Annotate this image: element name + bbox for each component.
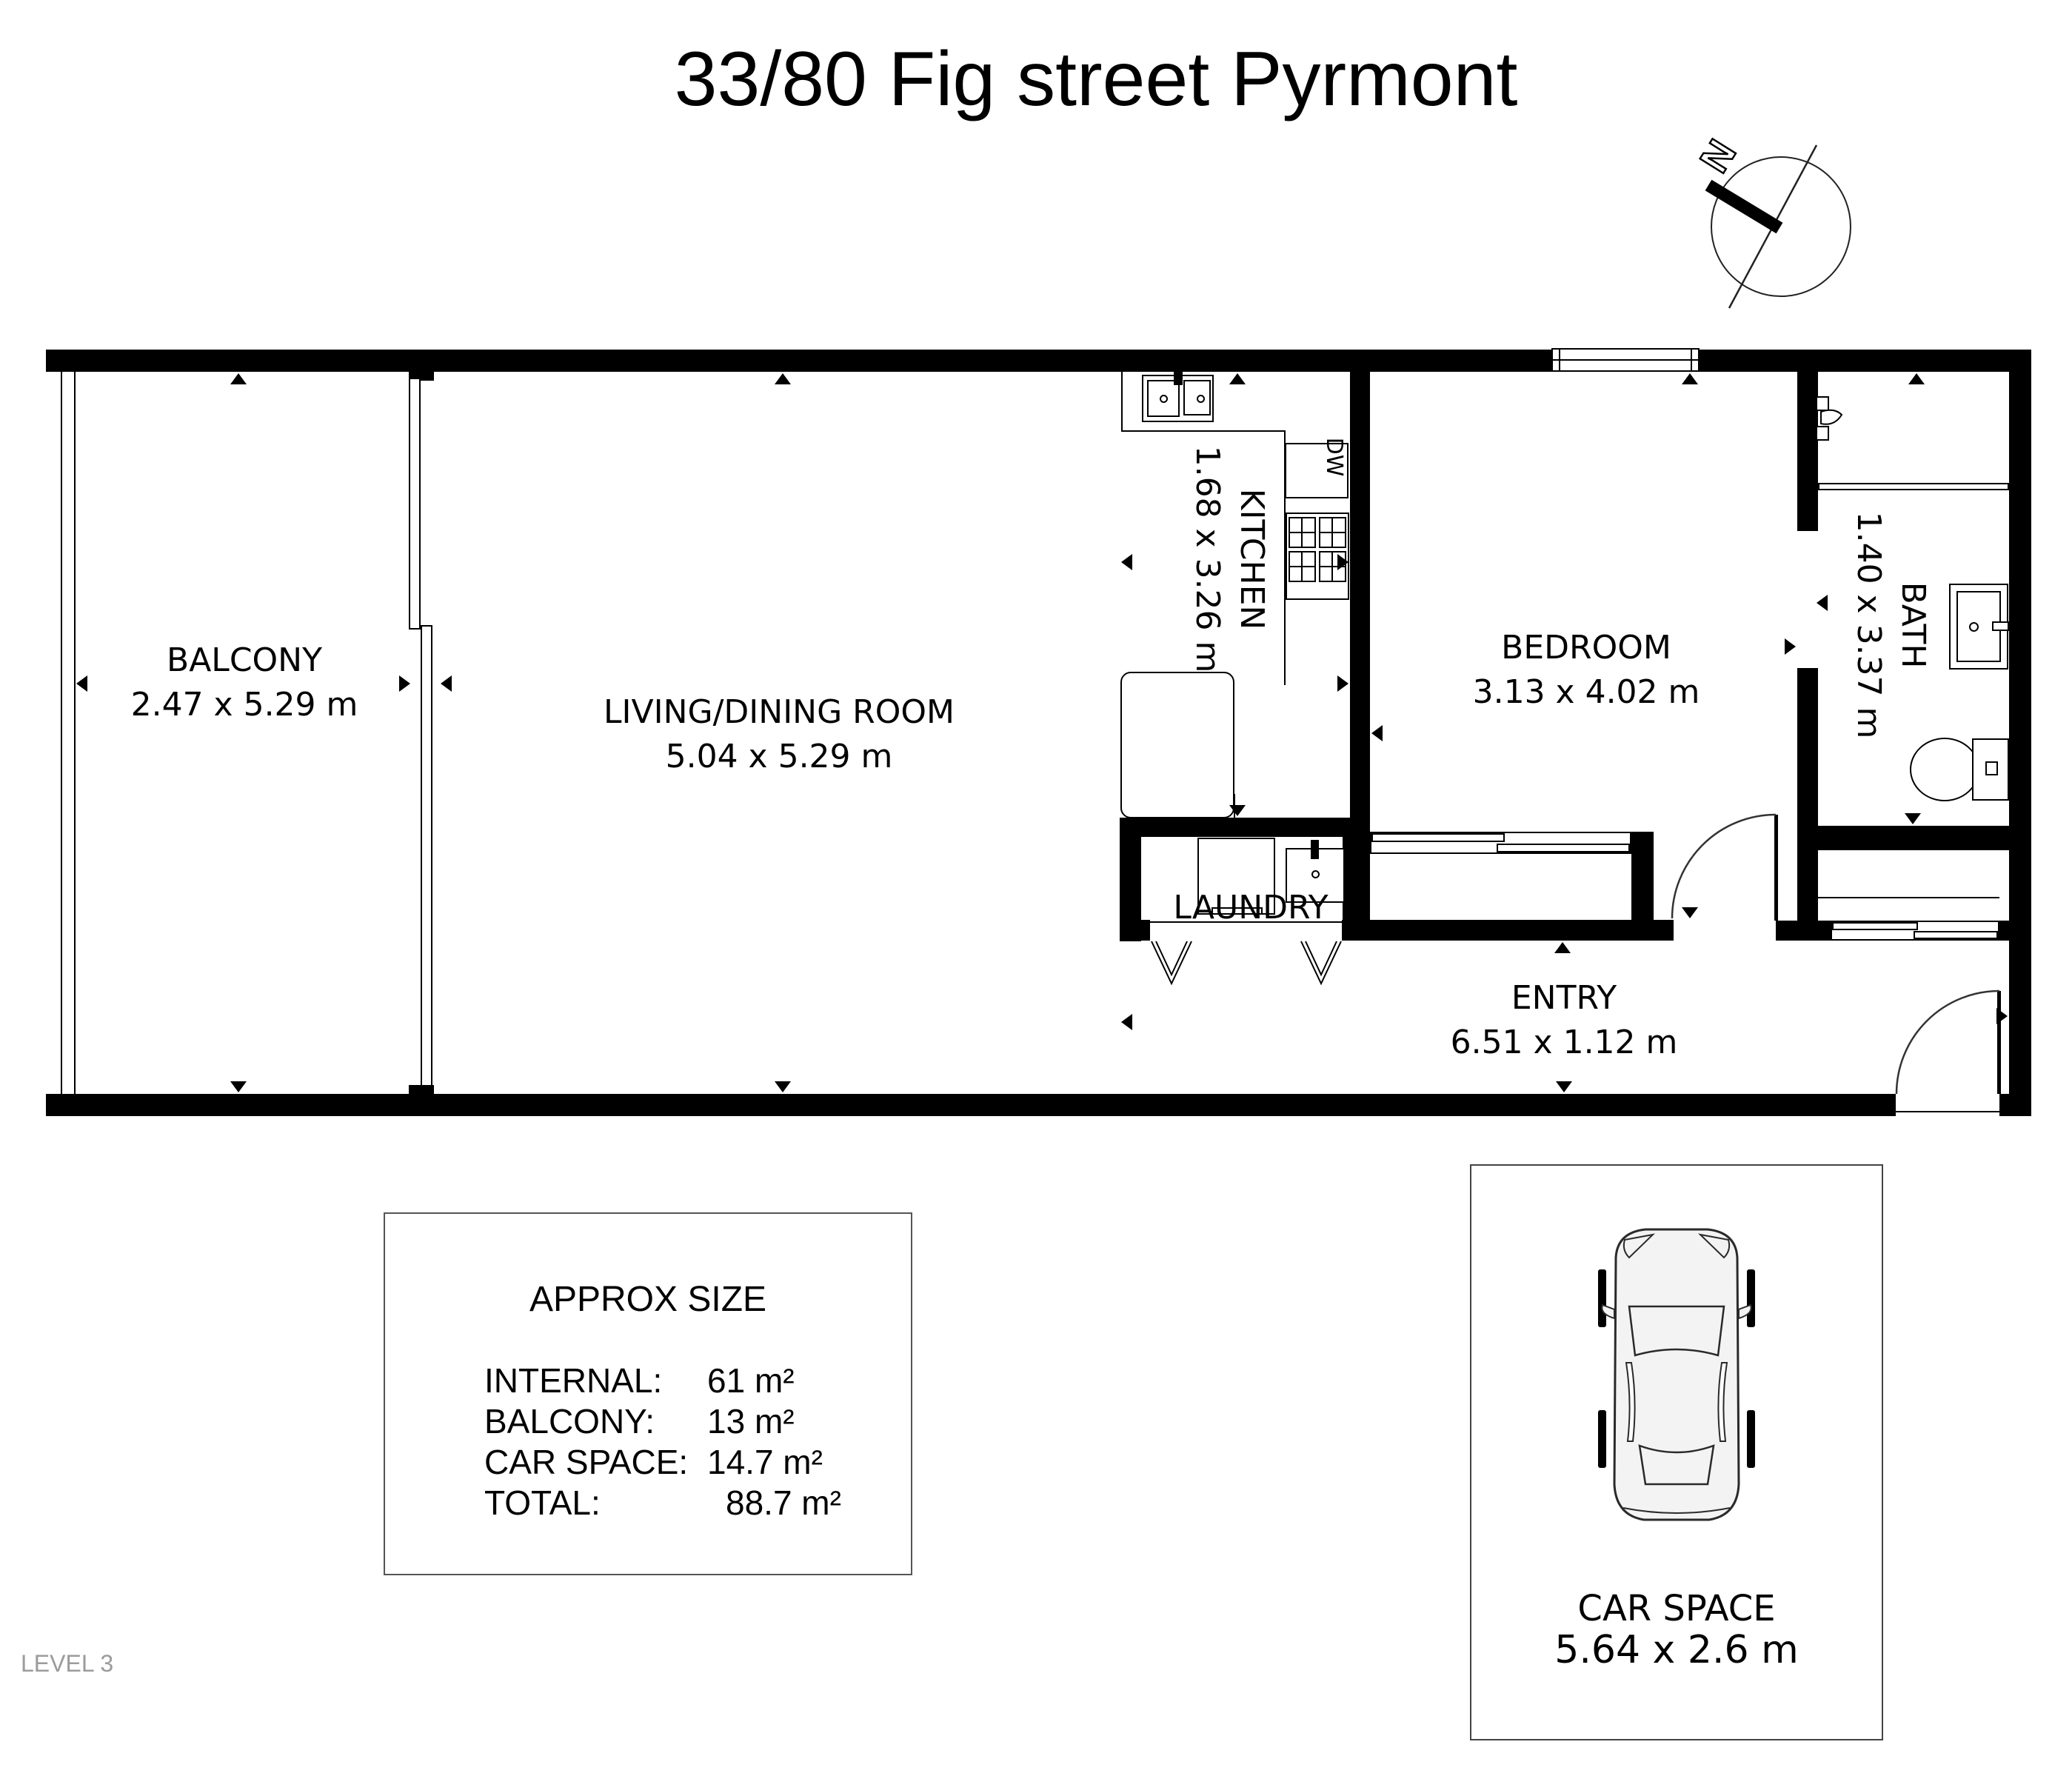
living-name: LIVING/DINING ROOM [557,690,1001,735]
balcony-label: BALCONY 2.47 x 5.29 m [96,638,392,727]
wall-entry-top-mid [1342,920,1674,941]
bedroom-window [1551,348,1700,372]
approx-row-label: CAR SPACE: [484,1442,688,1483]
laundry-tub-drain [1311,870,1320,878]
dim-arrow [1682,373,1698,384]
dim-arrow [76,675,87,692]
bedroom-dims: 3.13 x 4.02 m [1438,670,1734,715]
cupboard-shelf-line [1818,897,1999,898]
window-mullion [1553,359,1698,361]
approx-row-label: TOTAL: [484,1483,601,1523]
dim-arrow [441,675,452,692]
dim-arrow [1337,554,1349,570]
laundry-bifold-doors [1146,941,1348,987]
floor-plan-page: 33/80 Fig street Pyrmont N DW [0,0,2072,1776]
balcony-rail-inner [74,372,76,1094]
car-icon [1598,1223,1755,1527]
entry-name: ENTRY [1416,976,1712,1021]
shower-screen [1818,483,2009,490]
approx-size-title: APPROX SIZE [385,1279,911,1320]
bedroom-name: BEDROOM [1438,626,1734,670]
dim-arrow [1121,554,1132,570]
cupboard-slider-panel-2 [1914,931,1998,939]
approx-size-box: APPROX SIZE INTERNAL: 61 m² BALCONY: 13 … [384,1212,912,1575]
approx-row-value: 13 m² [707,1401,795,1442]
approx-row-label: BALCONY: [484,1401,655,1442]
dim-arrow [1817,595,1828,611]
bedroom-door-arc [1671,813,1778,921]
dim-arrow [1908,373,1925,384]
wall-door-hinge-chunk [1776,921,1831,941]
level-label: LEVEL 3 [21,1650,113,1677]
kitchen-name: KITCHEN [1229,433,1274,685]
entry-label: ENTRY 6.51 x 1.12 m [1416,976,1712,1065]
window-frame-left [1559,350,1560,370]
bedroom-label: BEDROOM 3.13 x 4.02 m [1438,626,1734,715]
wall-laundry-top [1120,818,1343,837]
bath-name: BATH [1891,499,1935,751]
balcony-name: BALCONY [96,638,392,683]
bath-dims: 1.40 x 3.37 m [1846,499,1891,751]
kitchen-counter-bottom-line [1121,430,1286,432]
dim-arrow [1121,1014,1132,1030]
dim-arrow [1229,805,1246,816]
kitchen-tap-icon [1174,367,1183,385]
page-title: 33/80 Fig street Pyrmont [648,36,1544,124]
kitchen-counter-left-line [1121,370,1123,432]
dim-arrow [1337,675,1349,692]
kitchen-dims: 1.68 x 3.26 m [1185,433,1229,685]
car-space-name: CAR SPACE [1528,1586,1825,1631]
window-frame-right [1691,350,1692,370]
balcony-rail-outer [61,372,62,1094]
dim-arrow [1371,725,1383,741]
vanity-drain [1969,622,1979,632]
closet-slider-panel-2 [1497,844,1630,852]
dim-arrow [1554,942,1571,953]
living-label: LIVING/DINING ROOM 5.04 x 5.29 m [557,690,1001,779]
wall-top [46,350,2031,372]
laundry-tap-icon [1311,840,1319,859]
dim-arrow [230,1081,247,1092]
dim-arrow [1229,373,1246,384]
dim-arrow [1682,907,1698,918]
kitchen-drain-left [1160,395,1168,403]
kitchen-label: KITCHEN 1.68 x 3.26 m [1185,433,1274,685]
approx-row-value: 88.7 m² [726,1483,841,1523]
dim-arrow [1556,1081,1572,1092]
approx-row-value: 14.7 m² [707,1442,823,1483]
dim-arrow [1996,1008,2008,1024]
approx-row-label: INTERNAL: [484,1361,662,1401]
front-door-threshold [1896,1111,1999,1112]
front-door-arc [1895,989,2001,1095]
balcony-sliding-panel-2 [421,625,432,1086]
closet-slider-panel-1 [1371,833,1505,842]
dim-arrow [1905,813,1921,824]
wall-bath-bottom [1816,826,2031,850]
kitchen-drain-right [1197,395,1205,403]
car-space-dims: 5.64 x 2.6 m [1528,1628,1825,1672]
wall-bath-left-lower [1797,668,1818,921]
dim-arrow [1785,638,1796,655]
dim-arrow [775,373,791,384]
balcony-sliding-panel-1 [409,378,421,630]
dim-arrow [230,373,247,384]
north-compass-icon: N [1692,132,1870,317]
wall-right [2009,350,2031,1116]
living-dims: 5.04 x 5.29 m [557,735,1001,779]
kitchen-bench [1120,672,1234,818]
dishwasher-label: DW [1320,427,1347,487]
cupboard-slider-panel-1 [1832,922,1918,930]
dim-arrow [399,675,410,692]
wall-bottom-left [46,1094,1896,1116]
laundry-label: LAUNDRY [1140,886,1362,930]
shower-tap-icon [1817,394,1846,444]
wall-bath-left-upper [1797,350,1818,531]
wall-bedroom-left [1350,350,1370,832]
vanity-tap-icon [1992,621,2009,631]
wall-closet-right [1631,832,1654,941]
balcony-dims: 2.47 x 5.29 m [96,683,392,727]
approx-row-value: 61 m² [707,1361,795,1401]
bath-label: BATH 1.40 x 3.37 m [1846,499,1935,751]
dim-arrow [775,1081,791,1092]
wall-cupboard-stub-right [1999,921,2009,941]
entry-dims: 6.51 x 1.12 m [1416,1021,1712,1065]
